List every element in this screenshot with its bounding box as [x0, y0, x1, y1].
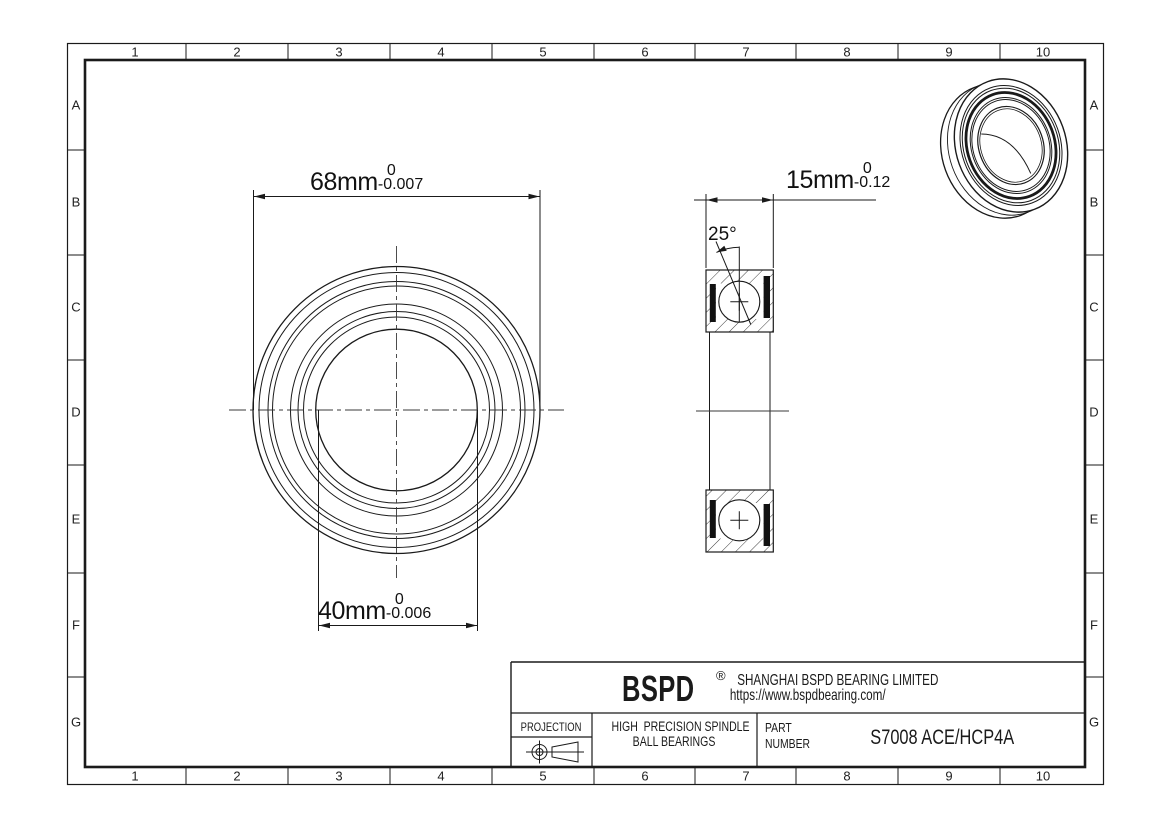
grid-col-label: 3 — [335, 46, 342, 59]
grid-row-label: D — [71, 406, 80, 419]
grid-col-label: 5 — [539, 770, 546, 783]
drawing-sheet: 1 2 3 4 5 6 7 8 9 10 1 2 3 4 5 6 7 8 9 1… — [0, 0, 1170, 827]
projection-symbol-icon — [526, 741, 584, 764]
grid-row-label: G — [71, 716, 81, 729]
grid-row-label: B — [72, 196, 81, 209]
grid-row-label: E — [1090, 513, 1099, 526]
dim-outer-diameter: 68mm 0 -0.007 — [310, 170, 423, 195]
grid-col-label: 4 — [437, 770, 444, 783]
dim-value: 68mm — [310, 170, 378, 195]
dim-bore-diameter: 40mm 0 -0.006 — [318, 599, 431, 624]
grid-row-label: A — [72, 99, 81, 112]
bearing-section-view — [694, 194, 876, 552]
grid-col-label: 10 — [1036, 770, 1050, 783]
grid-row-label: C — [71, 301, 80, 314]
website-url: https://www.bspdbearing.com/ — [700, 689, 916, 704]
drawing-canvas — [0, 0, 1170, 827]
projection-label: PROJECTION — [511, 722, 592, 734]
grid-row-label: G — [1089, 716, 1099, 729]
front-view-centerlines — [229, 246, 564, 578]
grid-col-label: 6 — [641, 770, 648, 783]
grid-col-label: 9 — [945, 46, 952, 59]
grid-col-label: 6 — [641, 46, 648, 59]
grid-row-label: C — [1089, 301, 1098, 314]
part-number-value: S7008 ACE/HCP4A — [810, 726, 1075, 750]
seal-right-top — [764, 276, 770, 318]
dim-value: 15mm — [786, 168, 854, 193]
grid-col-label: 1 — [131, 770, 138, 783]
grid-col-label: 7 — [742, 770, 749, 783]
dim-width: 15mm 0 -0.12 — [786, 168, 890, 193]
grid-col-label: 10 — [1036, 46, 1050, 59]
grid-col-label: 2 — [233, 46, 240, 59]
dim-tolerance: 0 -0.12 — [854, 162, 890, 190]
grid-row-label: A — [1090, 99, 1099, 112]
grid-row-label: B — [1090, 196, 1099, 209]
grid-row-label: F — [72, 619, 80, 632]
seal-left-top — [710, 284, 716, 322]
dim-value: 40mm — [318, 599, 386, 624]
contact-angle-label: 25° — [708, 225, 737, 244]
grid-col-label: 2 — [233, 770, 240, 783]
grid-row-label: F — [1090, 619, 1098, 632]
sheet-frame — [68, 44, 1104, 785]
bearing-front-view — [229, 246, 564, 578]
grid-col-label: 8 — [843, 46, 850, 59]
seal-left-bottom — [710, 500, 716, 538]
bearing-3d-view — [922, 63, 1086, 234]
company-info: SHANGHAI BSPD BEARING LIMITED https://ww… — [700, 674, 916, 703]
grid-col-label: 8 — [843, 770, 850, 783]
grid-col-label: 5 — [539, 46, 546, 59]
grid-col-label: 7 — [742, 46, 749, 59]
grid-row-label: D — [1089, 406, 1098, 419]
grid-col-label: 1 — [131, 46, 138, 59]
dim-tolerance: 0 -0.006 — [386, 593, 431, 621]
grid-col-label: 3 — [335, 770, 342, 783]
product-title: HIGH PRECISION SPINDLE BALL BEARINGS — [592, 719, 757, 749]
dim-tolerance: 0 -0.007 — [378, 164, 423, 192]
grid-col-label: 9 — [945, 770, 952, 783]
grid-row-label: E — [72, 513, 81, 526]
seal-right-bottom — [764, 504, 770, 546]
grid-col-label: 4 — [437, 46, 444, 59]
